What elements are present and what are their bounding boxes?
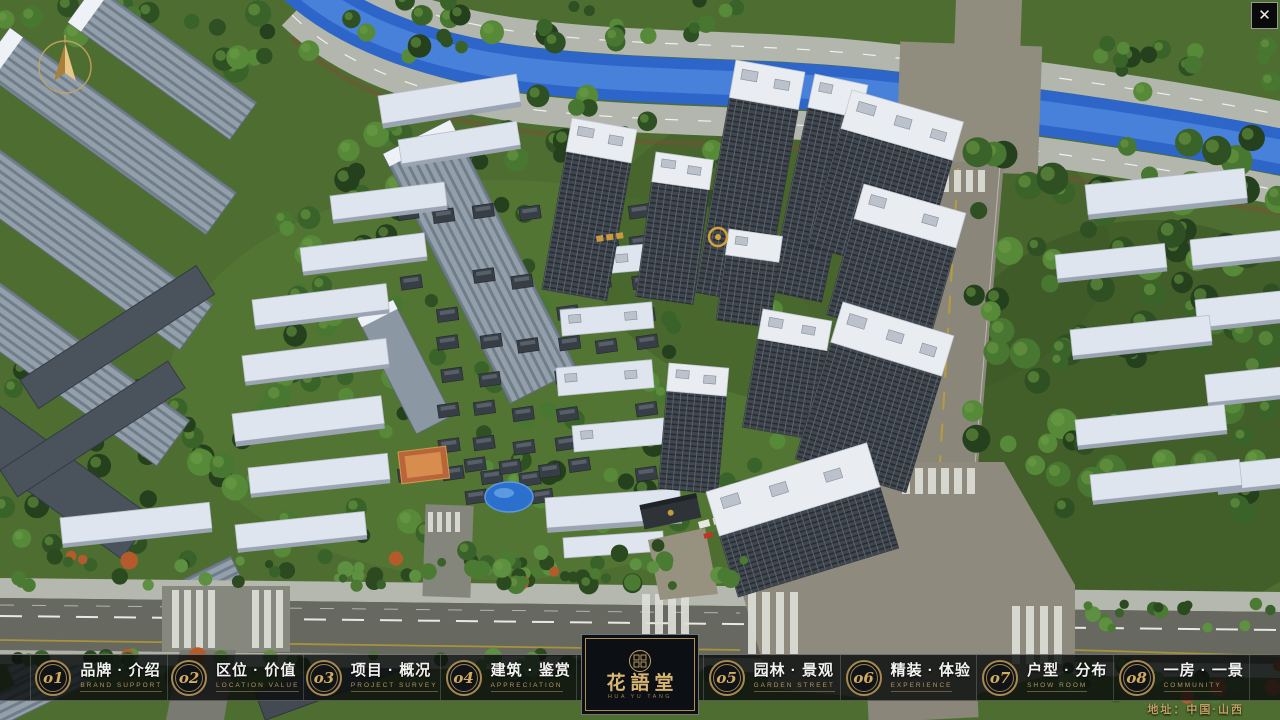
nav-item-sublabel: COMMUNITY bbox=[1164, 682, 1222, 692]
item-number: o8 bbox=[1126, 669, 1146, 687]
nav-item-o5[interactable]: o5园林 · 景观GARDEN STREET bbox=[704, 655, 840, 700]
nav-item-o2[interactable]: o2区位 · 价值LOCATION VALUE bbox=[167, 655, 304, 700]
item-number-badge: o8 bbox=[1119, 660, 1155, 696]
item-number: o1 bbox=[43, 669, 63, 687]
nav-item-sublabel: GARDEN STREET bbox=[754, 682, 835, 692]
nav-item-label: 园林 · 景观 bbox=[754, 663, 834, 679]
item-number: o4 bbox=[453, 669, 473, 687]
nav-group-left: o1品牌 · 介绍BRAND SUPPORTo2区位 · 价值LOCATION … bbox=[30, 655, 577, 700]
nav-item-sublabel: SHOW ROOM bbox=[1027, 682, 1087, 692]
item-number-badge: o7 bbox=[982, 660, 1018, 696]
compass-icon bbox=[33, 33, 97, 97]
item-number: o6 bbox=[853, 669, 873, 687]
nav-item-sublabel: BRAND SUPPORT bbox=[80, 682, 162, 692]
logo-title: 花語堂 bbox=[601, 674, 678, 693]
item-number: o3 bbox=[314, 669, 334, 687]
site-plan-3d-view[interactable] bbox=[0, 0, 1280, 720]
nav-item-label: 区位 · 价值 bbox=[216, 663, 296, 679]
nav-item-o3[interactable]: o3项目 · 概况PROJECT SURVEY bbox=[303, 655, 440, 700]
item-number: o2 bbox=[179, 669, 199, 687]
item-number-badge: o6 bbox=[846, 660, 882, 696]
item-number-badge: o2 bbox=[171, 660, 207, 696]
address-label: 地址：中国·山西 bbox=[1147, 701, 1244, 717]
item-number: o5 bbox=[716, 669, 736, 687]
close-button[interactable]: ✕ bbox=[1251, 2, 1278, 29]
nav-item-o7[interactable]: o7户型 · 分布SHOW ROOM bbox=[976, 655, 1113, 700]
nav-item-o1[interactable]: o1品牌 · 介绍BRAND SUPPORT bbox=[31, 655, 167, 700]
nav-group-right: o5园林 · 景观GARDEN STREETo6精装 · 体验EXPERIENC… bbox=[703, 655, 1250, 700]
item-number: o7 bbox=[990, 669, 1010, 687]
nav-item-sublabel: APPRECIATION bbox=[491, 682, 563, 692]
nav-item-label: 项目 · 概况 bbox=[351, 663, 431, 679]
nav-item-o4[interactable]: o4建筑 · 鉴赏APPRECIATION bbox=[440, 655, 577, 700]
nav-item-label: 建筑 · 鉴赏 bbox=[491, 663, 571, 679]
nav-item-o8[interactable]: o8一房 · 一景COMMUNITY bbox=[1113, 655, 1250, 700]
playground bbox=[398, 446, 450, 484]
logo-seal-icon bbox=[628, 649, 652, 673]
nav-item-label: 户型 · 分布 bbox=[1027, 663, 1107, 679]
item-number-badge: o3 bbox=[306, 660, 342, 696]
pond bbox=[485, 482, 533, 512]
nav-item-label: 精装 · 体验 bbox=[891, 663, 971, 679]
item-number-badge: o5 bbox=[709, 660, 745, 696]
nav-item-sublabel: LOCATION VALUE bbox=[216, 682, 299, 692]
item-number-badge: o4 bbox=[446, 660, 482, 696]
item-number-badge: o1 bbox=[35, 660, 71, 696]
nav-item-o6[interactable]: o6精装 · 体验EXPERIENCE bbox=[840, 655, 977, 700]
nav-item-sublabel: EXPERIENCE bbox=[891, 682, 953, 692]
nav-item-label: 品牌 · 介绍 bbox=[80, 663, 160, 679]
logo-subtitle: HUA YU TANG bbox=[608, 694, 672, 700]
project-logo[interactable]: 花語堂 HUA YU TANG bbox=[581, 634, 699, 715]
nav-item-label: 一房 · 一景 bbox=[1164, 663, 1244, 679]
nav-item-sublabel: PROJECT SURVEY bbox=[351, 682, 438, 692]
